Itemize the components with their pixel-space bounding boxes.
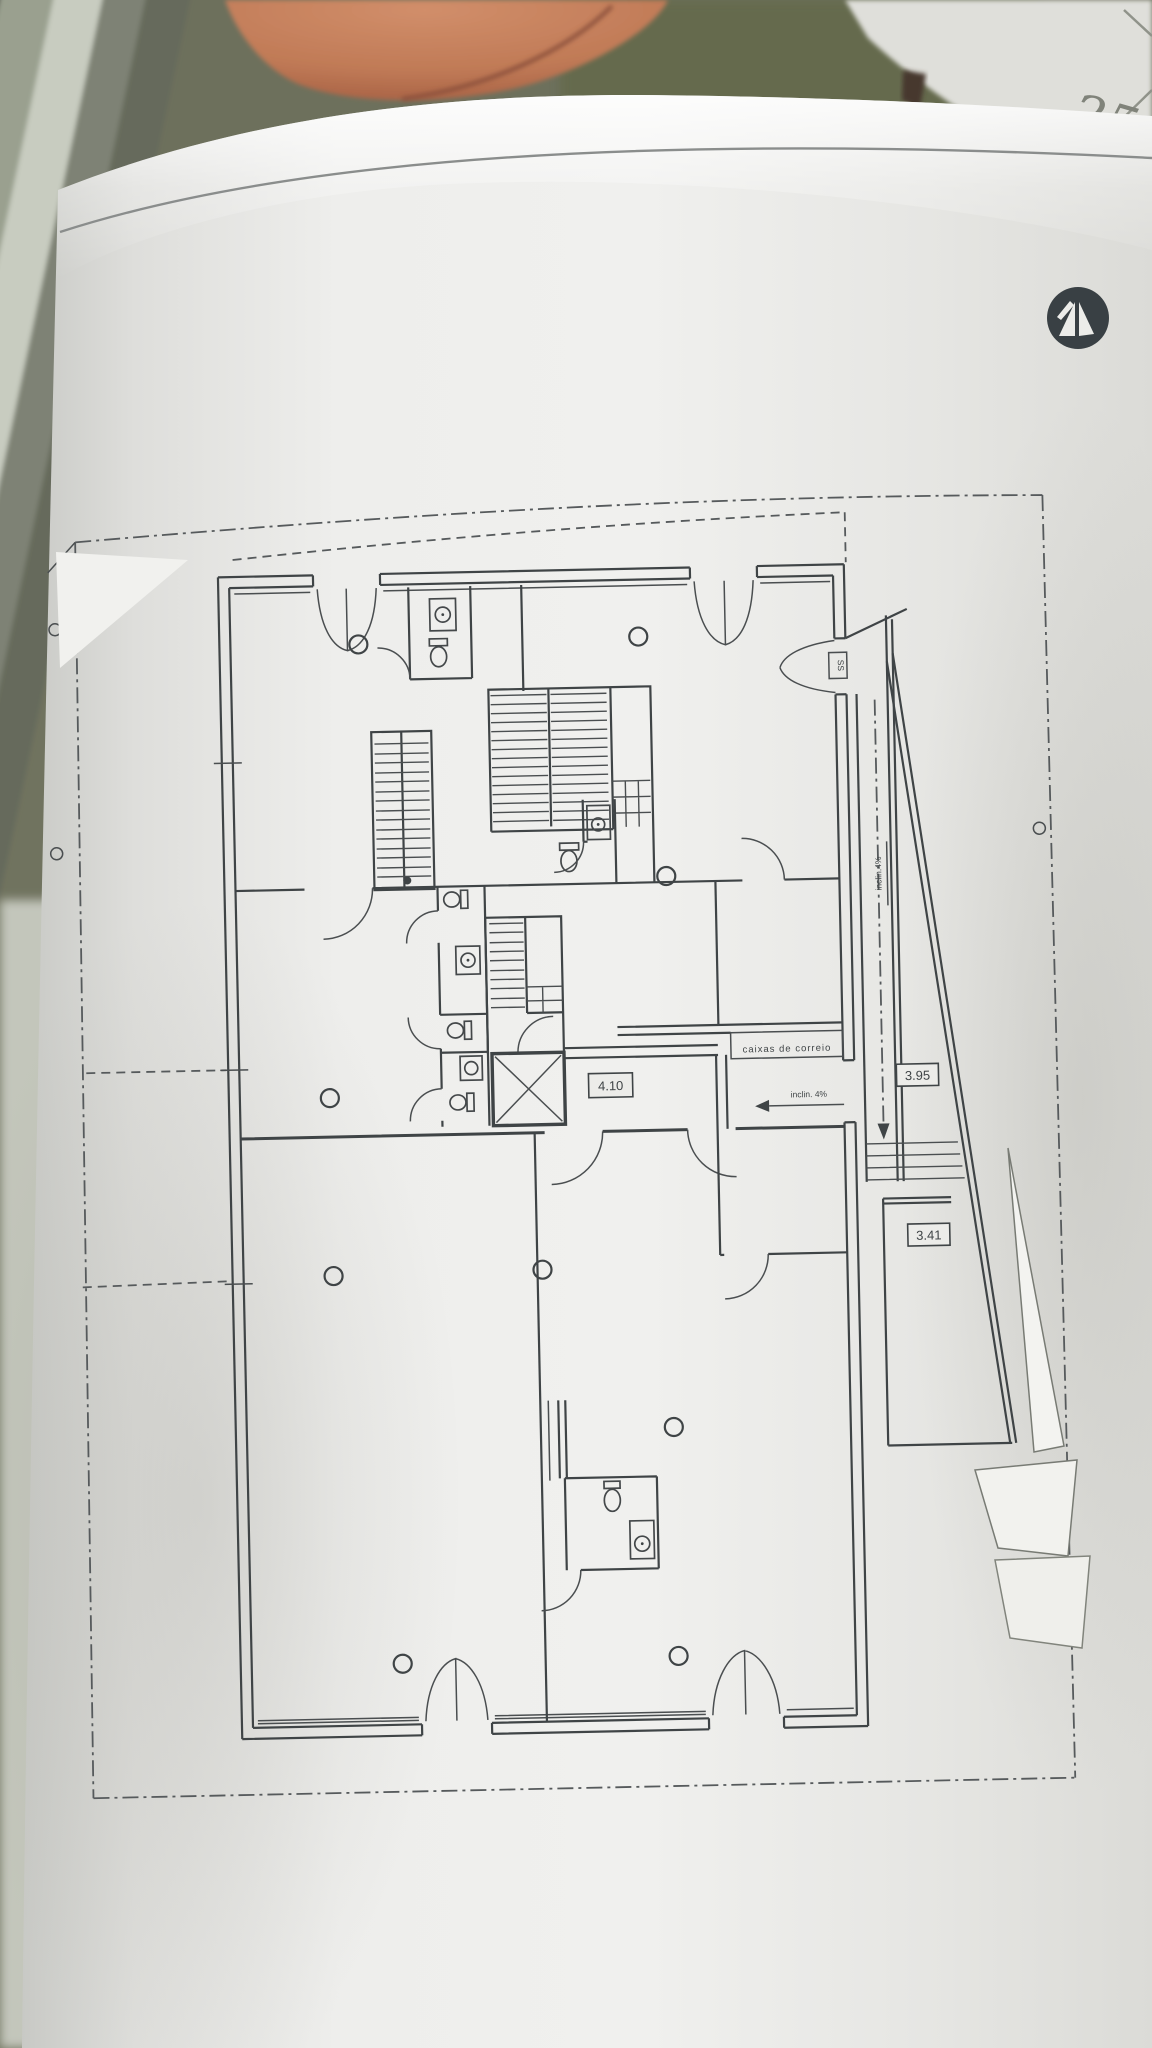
hall-width-label: 4.10	[598, 1078, 624, 1094]
logo-stamp	[1047, 287, 1109, 349]
mailboxes-label: caixas de correio	[742, 1043, 831, 1056]
entry-marker-label: SS	[836, 660, 846, 672]
main-sheet	[0, 95, 1152, 2048]
ramp-slope-side-label: inclin.4%	[873, 856, 884, 891]
dimension-hall: 4.10	[588, 1073, 632, 1098]
photographed-floor-plan: 25	[0, 0, 1152, 2048]
ramp-width-label: 3.95	[905, 1068, 931, 1084]
logo-circle	[1047, 287, 1109, 349]
lower-stair-width-label: 3.41	[916, 1227, 942, 1243]
slope-label: inclin. 4%	[791, 1089, 828, 1100]
